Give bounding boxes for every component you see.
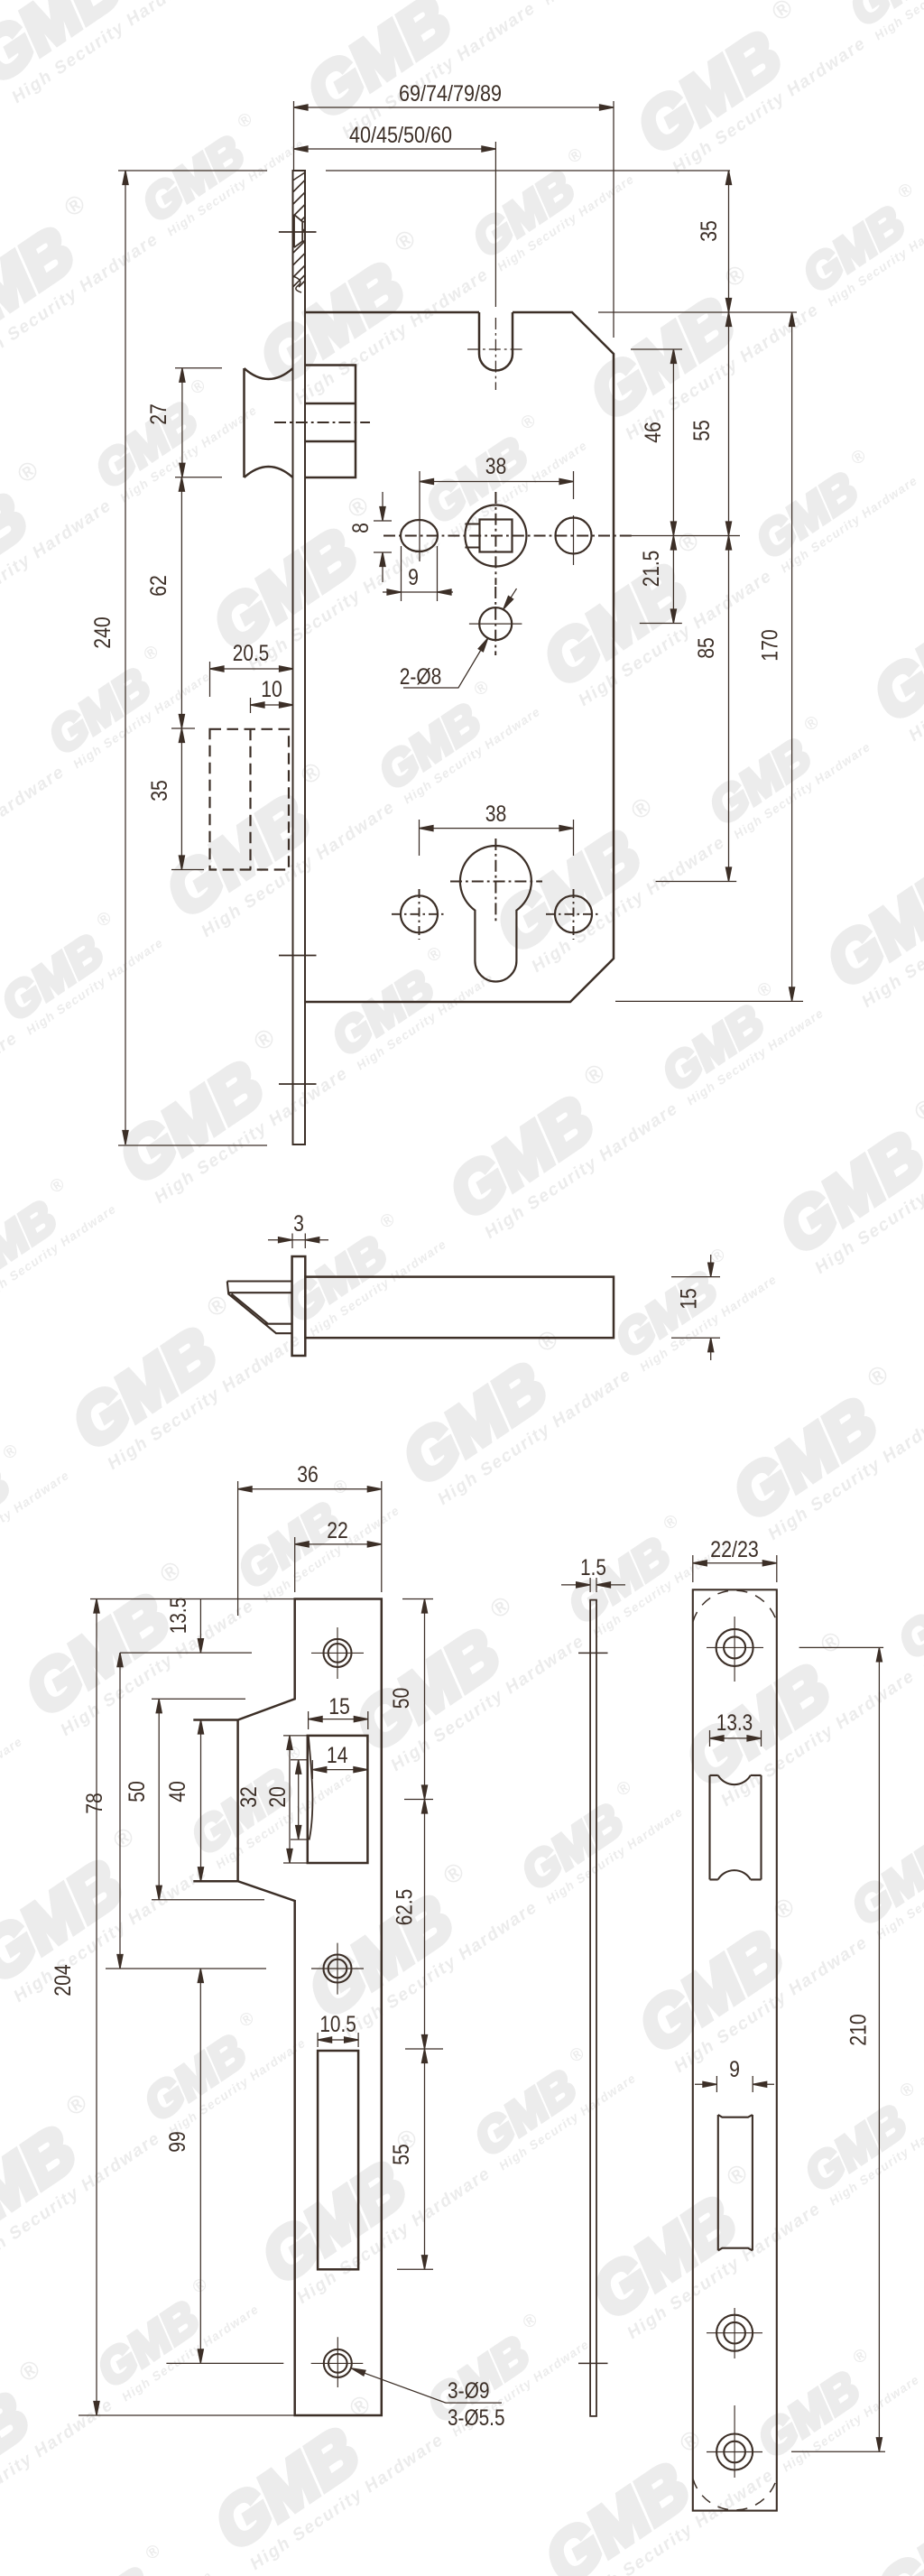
svg-text:99: 99 xyxy=(165,2131,190,2153)
svg-text:1.5: 1.5 xyxy=(580,1555,606,1580)
svg-text:32: 32 xyxy=(236,1786,262,1808)
svg-text:15: 15 xyxy=(676,1288,701,1310)
svg-text:62.5: 62.5 xyxy=(393,1889,418,1926)
svg-text:22/23: 22/23 xyxy=(710,1537,759,1562)
svg-text:21.5: 21.5 xyxy=(639,551,664,588)
svg-text:9: 9 xyxy=(729,2057,740,2082)
svg-text:36: 36 xyxy=(297,1462,319,1487)
svg-text:10.5: 10.5 xyxy=(319,2012,356,2037)
svg-text:240: 240 xyxy=(90,616,115,648)
svg-text:13.5: 13.5 xyxy=(166,1598,191,1635)
svg-text:50: 50 xyxy=(389,1688,414,1710)
svg-text:69/74/79/89: 69/74/79/89 xyxy=(399,81,502,107)
svg-text:170: 170 xyxy=(758,629,783,661)
svg-text:85: 85 xyxy=(694,637,719,659)
svg-text:27: 27 xyxy=(146,403,171,425)
svg-text:15: 15 xyxy=(328,1694,350,1719)
svg-text:22: 22 xyxy=(327,1518,348,1543)
svg-text:20: 20 xyxy=(265,1786,291,1808)
svg-text:78: 78 xyxy=(82,1793,107,1814)
svg-text:3-Ø5.5: 3-Ø5.5 xyxy=(448,2405,505,2431)
svg-text:210: 210 xyxy=(846,2014,872,2045)
svg-text:46: 46 xyxy=(641,422,666,443)
svg-text:40/45/50/60: 40/45/50/60 xyxy=(349,123,452,148)
svg-text:20.5: 20.5 xyxy=(233,641,270,666)
svg-text:2-Ø8: 2-Ø8 xyxy=(400,664,442,690)
svg-text:3: 3 xyxy=(293,1211,304,1237)
svg-text:38: 38 xyxy=(485,454,507,479)
svg-text:204: 204 xyxy=(51,1964,76,1996)
svg-text:38: 38 xyxy=(485,802,507,827)
svg-text:3-Ø9: 3-Ø9 xyxy=(448,2378,490,2404)
svg-text:13.3: 13.3 xyxy=(716,1710,753,1736)
svg-text:14: 14 xyxy=(327,1743,348,1768)
svg-text:50: 50 xyxy=(125,1781,150,1802)
svg-text:40: 40 xyxy=(165,1781,190,1802)
svg-text:10: 10 xyxy=(261,677,282,702)
svg-text:8: 8 xyxy=(348,523,374,533)
svg-text:55: 55 xyxy=(689,420,715,441)
svg-text:35: 35 xyxy=(147,780,172,802)
svg-text:62: 62 xyxy=(146,575,171,597)
svg-text:35: 35 xyxy=(697,220,722,242)
svg-text:55: 55 xyxy=(389,2144,414,2165)
svg-text:9: 9 xyxy=(408,565,419,590)
